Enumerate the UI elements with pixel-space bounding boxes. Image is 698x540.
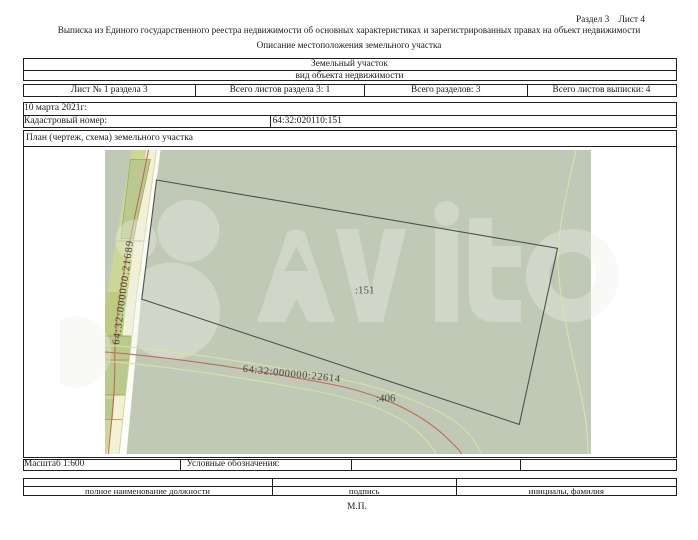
svg-text::406: :406 <box>376 393 396 405</box>
svg-text::151: :151 <box>355 285 375 297</box>
svg-text:64:32:000000:21689: 64:32:000000:21689 <box>111 239 136 345</box>
svg-text:64:32:000000:22614: 64:32:000000:22614 <box>242 364 341 385</box>
